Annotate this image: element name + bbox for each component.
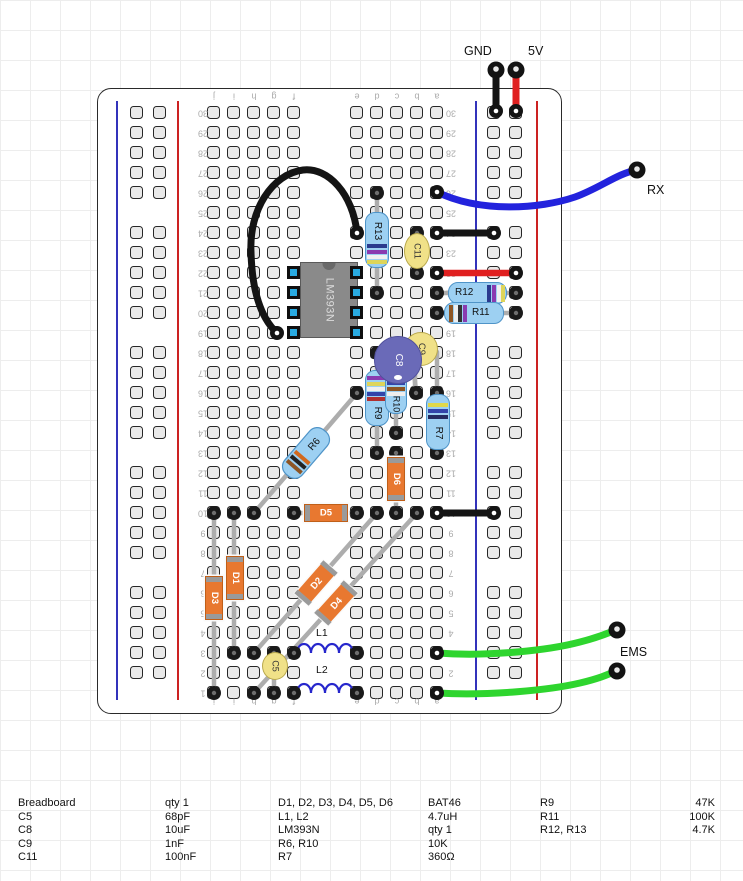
gnd-terminal-core <box>493 66 499 72</box>
wire-ring-core <box>492 511 497 516</box>
parts-list-cell: C8 <box>18 825 32 836</box>
ems-wire-upper[interactable] <box>437 630 616 654</box>
parts-list-cell: 100K <box>655 812 715 823</box>
parts-list-cell: 1nF <box>165 839 184 850</box>
parts-list-cell: 100nF <box>165 852 196 863</box>
wire-connection-rings <box>270 104 523 700</box>
parts-list-cell: 4.7K <box>655 825 715 836</box>
parts-list-cell: 10K <box>428 839 448 850</box>
parts-list-cell: R11 <box>540 812 559 823</box>
parts-list-cell: C9 <box>18 839 32 850</box>
parts-list-cell: Breadboard <box>18 798 76 809</box>
wire-ring-core <box>492 231 497 236</box>
wire-ring-core <box>435 651 440 656</box>
ems-wire-lower[interactable] <box>437 671 616 694</box>
parts-list-cell: R12, R13 <box>540 825 586 836</box>
gnd-label: GND <box>464 45 492 58</box>
parts-list-cell: 10uF <box>165 825 190 836</box>
ems-label: EMS <box>620 646 647 659</box>
wire-ring-core <box>435 190 440 195</box>
ems-terminal-lower-core <box>614 667 620 673</box>
external-terminals <box>488 62 646 680</box>
parts-list-cell: R7 <box>278 852 292 863</box>
wire-ring-core <box>514 271 519 276</box>
wire-ring-core <box>435 691 440 696</box>
parts-list-cell: 47K <box>655 798 715 809</box>
parts-list-cell: C11 <box>18 852 37 863</box>
parts-list-cell: 4.7uH <box>428 812 457 823</box>
parts-list-cell: 68pF <box>165 812 190 823</box>
parts-list-cell: BAT46 <box>428 798 461 809</box>
v5-terminal-core <box>513 66 519 72</box>
wire-ring-core <box>275 331 280 336</box>
ems-terminal-upper-core <box>614 626 620 632</box>
parts-list-cell: 360Ω <box>428 852 455 863</box>
parts-list-cell: R9 <box>540 798 554 809</box>
parts-list: Breadboardqty 1D1, D2, D3, D4, D5, D6BAT… <box>0 798 743 868</box>
rx-label: RX <box>647 184 664 197</box>
v5-label: 5V <box>528 45 543 58</box>
wires-layer <box>0 0 743 881</box>
wire-ring-core <box>494 109 499 114</box>
parts-list-cell: D1, D2, D3, D4, D5, D6 <box>278 798 393 809</box>
wire-ring-core <box>435 271 440 276</box>
black-arc-jumper-wire[interactable] <box>251 170 357 333</box>
parts-list-cell: R6, R10 <box>278 839 318 850</box>
rx-terminal-core <box>634 166 640 172</box>
rx-wire[interactable] <box>437 170 637 207</box>
parts-list-cell: qty 1 <box>165 798 189 809</box>
breadboard-diagram: 1234567891011121314151617181920212223242… <box>0 0 743 881</box>
parts-list-cell: LM393N <box>278 825 320 836</box>
wire-ring-core <box>514 109 519 114</box>
parts-list-cell: qty 1 <box>428 825 452 836</box>
wire-ring-core <box>435 231 440 236</box>
wire-ring-core <box>355 231 360 236</box>
parts-list-cell: C5 <box>18 812 32 823</box>
wire-ring-core <box>435 511 440 516</box>
parts-list-cell: L1, L2 <box>278 812 309 823</box>
